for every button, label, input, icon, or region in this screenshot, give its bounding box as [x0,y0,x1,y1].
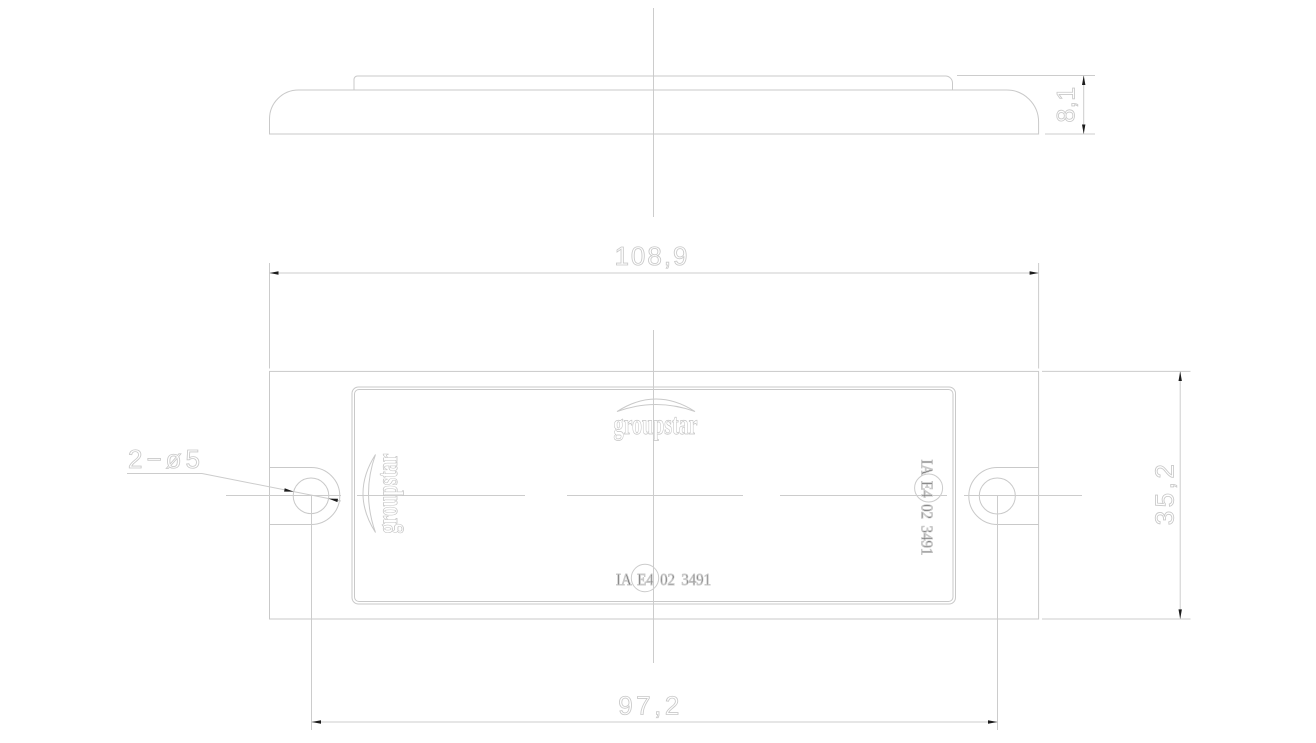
svg-text:108,9: 108,9 [614,241,689,271]
svg-text:IA E4 02 3491: IA E4 02 3491 [616,570,711,589]
svg-text:groupstar: groupstar [371,454,404,534]
svg-text:35,2: 35,2 [1150,461,1180,526]
svg-text:97,2: 97,2 [618,691,683,721]
svg-text:8,1: 8,1 [1053,86,1081,122]
svg-text:2−ø5: 2−ø5 [128,444,204,474]
svg-text:groupstar: groupstar [614,408,698,441]
svg-text:IA E4 02 3491: IA E4 02 3491 [918,460,937,556]
